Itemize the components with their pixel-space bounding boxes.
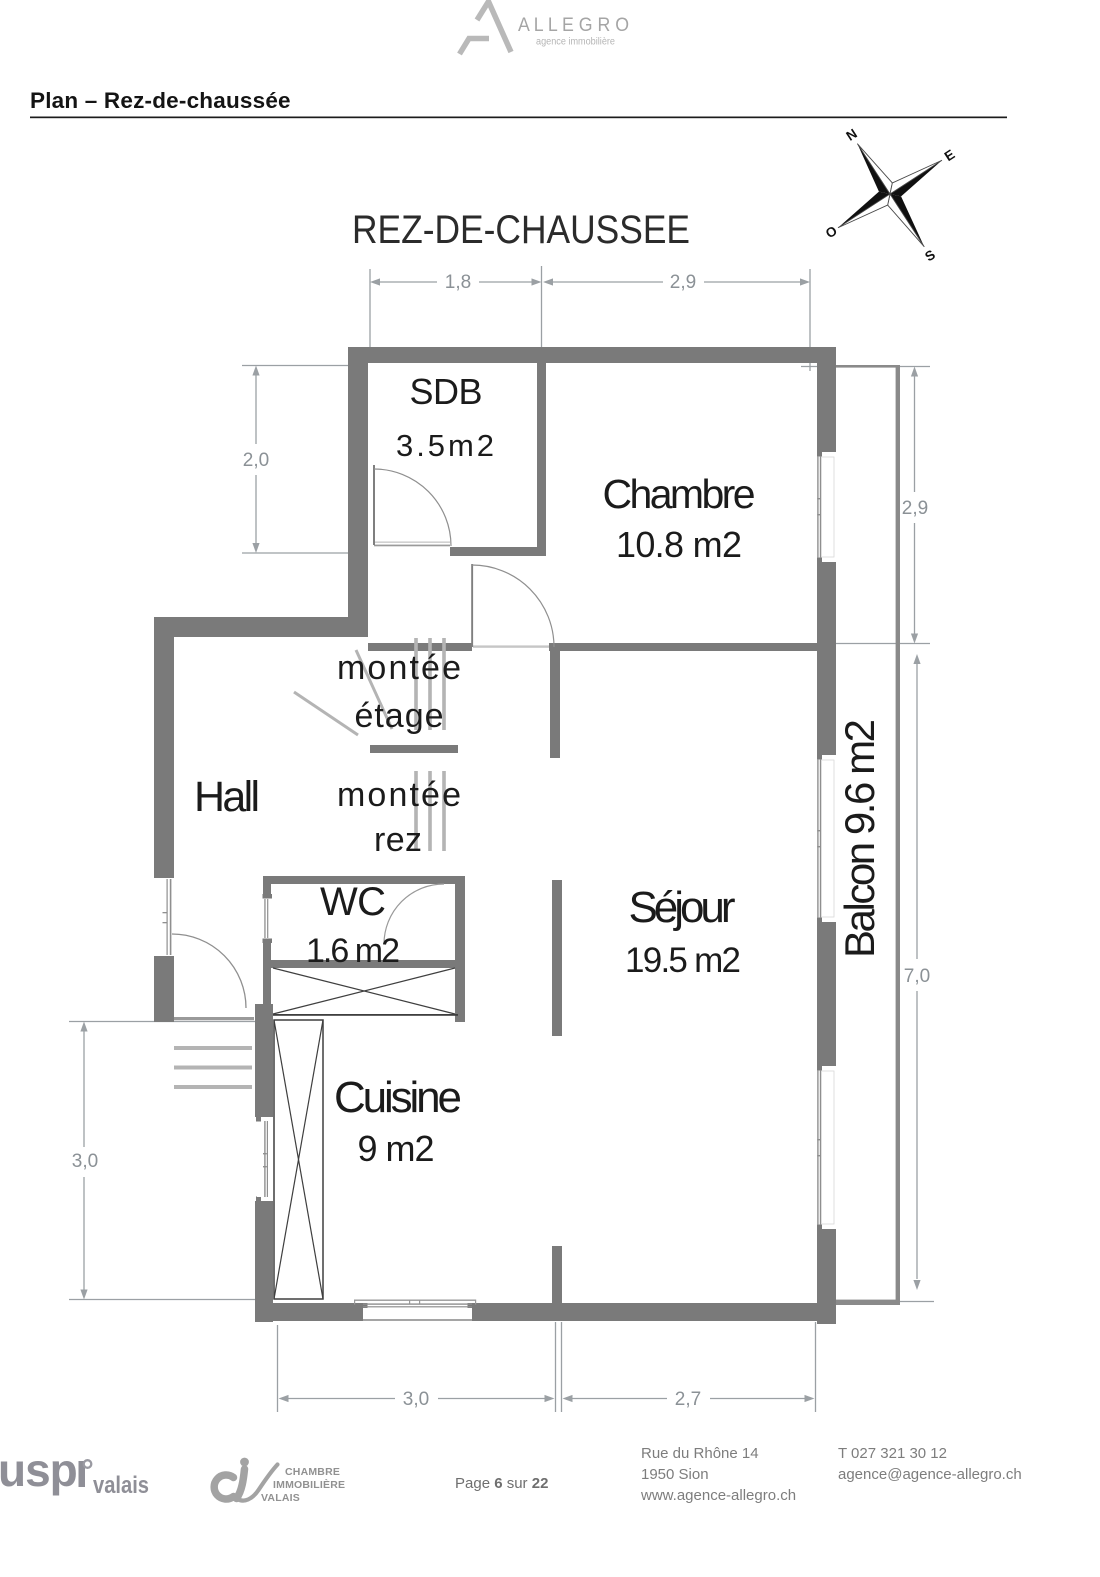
svg-text:T 027 321 30 12: T 027 321 30 12 — [838, 1445, 947, 1462]
svg-text:3,0: 3,0 — [403, 1389, 429, 1410]
svg-text:agence@agence-allegro.ch: agence@agence-allegro.ch — [838, 1466, 1022, 1483]
svg-text:2,9: 2,9 — [902, 498, 928, 519]
svg-text:étage: étage — [355, 697, 444, 735]
svg-text:valais: valais — [93, 1472, 149, 1499]
svg-text:A L L E G R O: A L L E G R O — [518, 15, 629, 36]
svg-text:rez: rez — [374, 821, 422, 859]
svg-text:usp: usp — [0, 1444, 77, 1496]
svg-text:2,0: 2,0 — [243, 450, 269, 471]
svg-text:1.6 m2: 1.6 m2 — [306, 932, 400, 970]
svg-text:Plan – Rez-de-chaussée: Plan – Rez-de-chaussée — [30, 88, 291, 113]
svg-text:3.5m2: 3.5m2 — [396, 428, 494, 463]
svg-text:Chambre: Chambre — [603, 471, 756, 517]
svg-text:19.5 m2: 19.5 m2 — [625, 941, 741, 980]
svg-text:agence immobilière: agence immobilière — [536, 37, 615, 48]
svg-text:REZ-DE-CHAUSSEE: REZ-DE-CHAUSSEE — [352, 208, 690, 252]
svg-text:IMMOBILIÈRE: IMMOBILIÈRE — [273, 1478, 345, 1491]
svg-text:Hall: Hall — [194, 773, 260, 821]
svg-text:montée: montée — [337, 776, 461, 814]
svg-text:2,7: 2,7 — [675, 1389, 701, 1410]
svg-text:www.agence-allegro.ch: www.agence-allegro.ch — [640, 1487, 796, 1504]
svg-text:7,0: 7,0 — [904, 966, 930, 987]
svg-text:montée: montée — [337, 649, 461, 687]
svg-text:Rue du Rhône 14: Rue du Rhône 14 — [641, 1445, 759, 1462]
svg-text:9 m2: 9 m2 — [358, 1128, 435, 1169]
svg-text:3,0: 3,0 — [72, 1151, 98, 1172]
svg-text:VALAIS: VALAIS — [261, 1492, 300, 1504]
svg-text:Cuisine: Cuisine — [334, 1073, 462, 1122]
svg-text:Page 6 sur 22: Page 6 sur 22 — [455, 1475, 548, 1492]
svg-text:WC: WC — [320, 880, 386, 924]
svg-text:Séjour: Séjour — [629, 883, 736, 932]
svg-text:10.8 m2: 10.8 m2 — [616, 524, 742, 565]
svg-text:SDB: SDB — [410, 371, 483, 412]
svg-text:Balcon 9.6 m2: Balcon 9.6 m2 — [836, 719, 883, 958]
svg-text:1950 Sion: 1950 Sion — [641, 1466, 709, 1483]
svg-text:CHAMBRE: CHAMBRE — [285, 1466, 340, 1478]
svg-text:1,8: 1,8 — [445, 272, 471, 293]
svg-text:2,9: 2,9 — [670, 272, 696, 293]
